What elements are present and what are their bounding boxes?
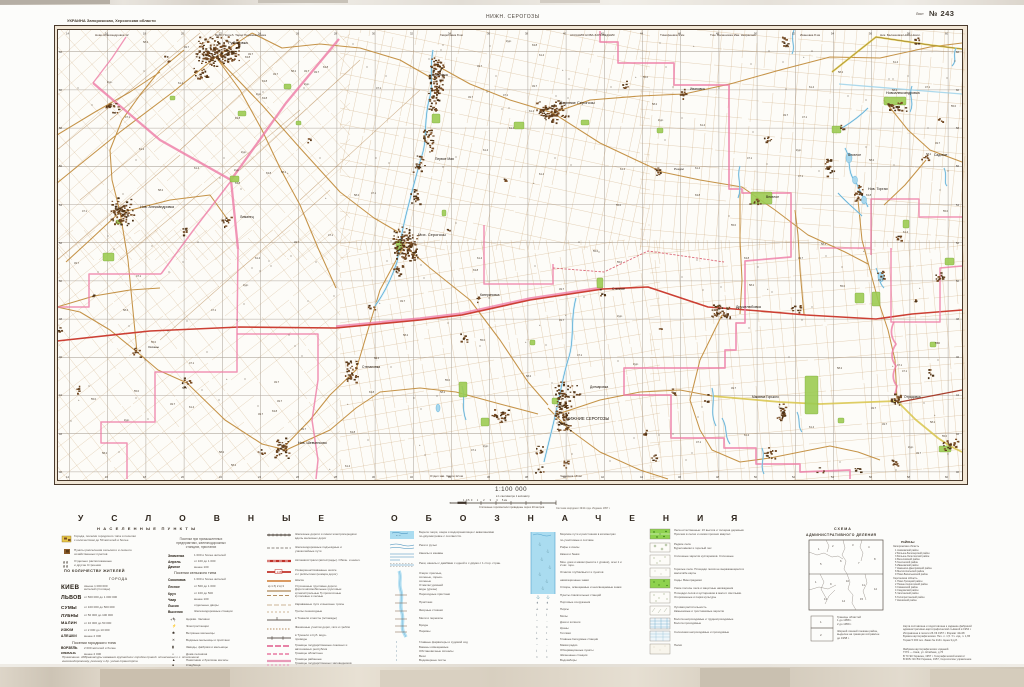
svg-text:58.2: 58.2 [930,420,936,424]
svg-text:58.2: 58.2 [403,333,409,337]
svg-text:Мих. Серогозы: Мих. Серогозы [418,232,446,237]
svg-text:61.4: 61.4 [178,81,184,85]
svg-text:Кург.: Кург. [256,92,262,96]
svg-text:55.0: 55.0 [943,209,949,213]
svg-text:⚓: ⚓ [546,595,550,599]
svg-text:Оксаны: Оксаны [148,345,160,349]
svg-text:55.0: 55.0 [643,75,649,79]
svg-text:47.1: 47.1 [189,361,195,365]
svg-text:49.7: 49.7 [184,45,190,49]
svg-text:61.4: 61.4 [744,433,750,437]
svg-text:61.4: 61.4 [809,85,815,89]
svg-text:Степное: Степное [612,287,625,291]
svg-text:⟟: ⟟ [396,649,397,653]
svg-text:Степановка: Степановка [362,365,380,369]
svg-text:63.8: 63.8 [266,171,272,175]
svg-text:55.0: 55.0 [942,434,948,438]
svg-text:49.7: 49.7 [400,299,406,303]
svg-text:⌐ ¬: ⌐ ¬ [396,533,401,537]
svg-text:63.8: 63.8 [744,256,750,260]
svg-text:··: ·· [546,619,548,623]
svg-text:Отдел зав. Чапли 12 км: Отдел зав. Чапли 12 км [430,474,463,478]
svg-text:Кург.: Кург. [241,150,247,154]
svg-text:д д: д д [63,564,68,568]
svg-text:49.7: 49.7 [878,278,884,282]
svg-text:2: 2 [820,633,822,637]
svg-text:61.4: 61.4 [695,166,701,170]
svg-text:49.7: 49.7 [783,113,789,117]
svg-text:63.8: 63.8 [262,96,268,100]
svg-text:61.4: 61.4 [477,256,483,260]
svg-text:61.4: 61.4 [194,166,200,170]
svg-text:49.7: 49.7 [477,64,483,68]
svg-text:47.1: 47.1 [925,85,931,89]
svg-text:1: 1 [820,620,822,624]
svg-text:↟: ↟ [536,601,539,605]
svg-text:Кург.: Кург. [397,252,403,256]
svg-text:61.4: 61.4 [374,356,380,360]
svg-text:61.4: 61.4 [539,172,545,176]
svg-text:63.8: 63.8 [245,55,251,59]
svg-text:⟟: ⟟ [396,645,397,649]
svg-text:49.7: 49.7 [258,412,264,416]
svg-text:49.7: 49.7 [468,95,474,99]
svg-text:47.1: 47.1 [696,440,702,444]
svg-text:61.4: 61.4 [700,123,706,127]
svg-text:55.0: 55.0 [616,203,622,207]
svg-text:НИЖНИЕ СЕРОГОЗЫ: НИЖНИЕ СЕРОГОЗЫ [566,416,609,421]
svg-text:Верхние Серогозы: Верхние Серогозы [560,100,595,105]
svg-text:14: 14 [842,599,846,603]
svg-text:63.8: 63.8 [323,65,329,69]
svg-text:⟟: ⟟ [546,631,547,635]
svg-text:63.8: 63.8 [473,268,479,272]
svg-text:Кург.: Кург. [243,283,249,287]
svg-text:49.7: 49.7 [74,261,80,265]
svg-text:49.7: 49.7 [871,406,877,410]
svg-text:Кург.: Кург. [658,118,664,122]
svg-text:Рубановка: Рубановка [228,40,249,45]
svg-text:11: 11 [862,583,865,587]
svg-text:55.0: 55.0 [951,104,957,108]
svg-text:148: 148 [277,570,282,574]
svg-text:Дружелюбовка: Дружелюбовка [736,305,761,309]
svg-text:58.2: 58.2 [526,374,532,378]
svg-text:Катериновка: Катериновка [480,293,500,297]
svg-text:⟟: ⟟ [396,640,397,644]
svg-text:49.7: 49.7 [532,84,538,88]
svg-text:··: ·· [536,643,538,647]
svg-text:63.8: 63.8 [350,430,356,434]
svg-text:61.4: 61.4 [903,230,909,234]
svg-text:Роздол: Роздол [674,167,684,171]
svg-text:49.7: 49.7 [170,402,176,406]
svg-text:Косаковка: Косаковка [432,73,448,77]
svg-text:12: 12 [874,587,878,591]
svg-text:15: 15 [860,597,864,601]
svg-text:55.0: 55.0 [445,378,451,382]
svg-text:63.8: 63.8 [532,43,538,47]
svg-text:⌇: ⌇ [536,613,538,617]
svg-text:Лиманец: Лиманец [240,215,254,219]
svg-text:61.4: 61.4 [809,425,815,429]
svg-text:49.7: 49.7 [304,69,310,73]
svg-text:47.1: 47.1 [125,115,131,119]
svg-text:⚓: ⚓ [536,595,540,599]
svg-text:55.0: 55.0 [840,284,846,288]
svg-text:Кург.: Кург. [908,445,914,449]
svg-text:58.2: 58.2 [926,152,932,156]
svg-text:63.8: 63.8 [272,409,278,413]
svg-text:47.1: 47.1 [371,191,377,195]
svg-text:Первое Мая: Первое Мая [435,157,454,161]
svg-text:49.7: 49.7 [935,141,941,145]
svg-text:47.1: 47.1 [136,274,142,278]
svg-text:13: 13 [824,597,828,601]
svg-text:Нов. Торгаи: Нов. Торгаи [868,187,888,191]
svg-text:47.1: 47.1 [328,233,334,237]
svg-text:61.4: 61.4 [189,405,195,409]
svg-text:Кург.: Кург. [107,80,113,84]
svg-text:58.2: 58.2 [838,70,844,74]
svg-text:Нов. Шевченково: Нов. Шевченково [298,441,327,445]
svg-text:58.2: 58.2 [182,386,188,390]
svg-text:⚓: ⚓ [546,549,550,553]
svg-text:)(: )( [276,616,278,620]
svg-text:61.4: 61.4 [893,60,899,64]
svg-text:47.1: 47.1 [503,93,509,97]
svg-text:··: ·· [536,619,538,623]
svg-text:49.7: 49.7 [731,386,737,390]
svg-text:49.7: 49.7 [559,287,565,291]
svg-text:58.2: 58.2 [281,170,287,174]
svg-text:49.7: 49.7 [916,451,922,455]
svg-text:61.4: 61.4 [255,256,261,260]
svg-text:↟: ↟ [546,601,549,605]
svg-text:⟂: ⟂ [536,607,539,611]
svg-text:61.4: 61.4 [509,126,515,130]
svg-text:63.8: 63.8 [235,181,241,185]
svg-text:58.2: 58.2 [143,40,149,44]
svg-text:47.1: 47.1 [798,174,804,178]
svg-text:Ивановка: Ивановка [690,87,705,91]
svg-text:Кург.: Кург. [506,39,512,43]
svg-text:Отрадовка: Отрадовка [904,395,921,399]
svg-text:55.0: 55.0 [480,338,486,342]
svg-text:58.2: 58.2 [219,450,225,454]
svg-text:≈: ≈ [536,625,538,629]
svg-text:58.2: 58.2 [291,69,297,73]
svg-text:49.7: 49.7 [294,240,300,244]
svg-text:⚓: ⚓ [538,542,542,546]
svg-text:⟟: ⟟ [536,631,538,635]
svg-text:63.8: 63.8 [866,193,872,197]
svg-text:61.4: 61.4 [620,167,626,171]
svg-text:Ивановка 8 км: Ивановка 8 км [800,33,820,37]
svg-text:Гавриловка 8 км: Гавриловка 8 км [440,33,463,37]
svg-text:⚓: ⚓ [545,579,549,583]
svg-text:Садовое: Садовое [934,153,948,157]
svg-text:55.0: 55.0 [151,340,157,344]
svg-text:63.8: 63.8 [369,390,375,394]
svg-text:+: + [536,637,538,641]
svg-text:49.7: 49.7 [314,70,320,74]
svg-text:58.2: 58.2 [821,242,827,246]
svg-text:⟟: ⟟ [396,654,397,658]
svg-text:а) 1 б) 2 в) 3: а) 1 б) 2 в) 3 [268,584,284,588]
svg-text:Кург.: Кург. [796,148,802,152]
svg-text:58.2: 58.2 [102,451,108,455]
svg-text:Веселое: Веселое [848,153,861,157]
svg-text:63.8: 63.8 [235,116,241,120]
svg-text:⌇: ⌇ [546,613,547,617]
svg-text:55.0: 55.0 [91,397,97,401]
svg-text:47.1: 47.1 [471,448,477,452]
svg-text:··: ·· [546,643,548,647]
svg-text:55.0: 55.0 [593,249,599,253]
svg-text:Нов. Александровка: Нов. Александровка [140,205,174,209]
svg-text:61.4: 61.4 [345,464,351,468]
svg-text:Кург.: Кург. [124,418,130,422]
svg-text:Ново-Александровка 12: Ново-Александровка 12 [95,33,129,37]
svg-text:47.1: 47.1 [376,86,382,90]
svg-text:≈: ≈ [546,625,548,629]
svg-text:47.1: 47.1 [82,209,88,213]
svg-text:55.0: 55.0 [617,260,623,264]
svg-text:⌇: ⌇ [536,649,538,653]
svg-text:47.1: 47.1 [211,308,217,312]
svg-text:58.2: 58.2 [440,390,446,394]
svg-text:49.7: 49.7 [559,318,565,322]
svg-text:Ник. Балашовка Ново-Никол.: Ник. Балашовка Ново-Никол. [880,33,921,37]
svg-text:47.1: 47.1 [747,156,753,160]
svg-text:47.1: 47.1 [577,353,583,357]
svg-text:58.2: 58.2 [892,88,898,92]
svg-text:49.7: 49.7 [301,427,307,431]
svg-text:58.2: 58.2 [354,193,360,197]
svg-text:⚓: ⚓ [540,557,544,561]
svg-text:АСКАНИЯ НОВА ЗАПОВЕДНИК: АСКАНИЯ НОВА ЗАПОВЕДНИК [570,33,615,37]
svg-text:Максима Горького: Максима Горького [752,395,779,399]
svg-text:10: 10 [846,579,850,583]
svg-text:58.2: 58.2 [652,102,658,106]
svg-text:+: + [546,637,548,641]
svg-text:Кург.: Кург. [633,362,639,366]
svg-text:⟂: ⟂ [546,607,548,611]
svg-text:⟟: ⟟ [396,658,397,662]
svg-text:61.4: 61.4 [529,109,535,113]
svg-text:63.8: 63.8 [695,193,701,197]
svg-text:58.2: 58.2 [231,463,237,467]
svg-text:47.1: 47.1 [897,363,903,367]
svg-text:47.1: 47.1 [802,115,808,119]
svg-text:58.2: 58.2 [158,188,164,192]
svg-text:58.2: 58.2 [749,283,755,287]
svg-text:⌇: ⌇ [546,649,547,653]
svg-text:58.2: 58.2 [869,158,875,162]
svg-text:49.7: 49.7 [882,422,888,426]
svg-text:58.2: 58.2 [837,366,843,370]
svg-text:61.4: 61.4 [539,53,545,57]
svg-text:49.7: 49.7 [277,399,283,403]
svg-text:55.0: 55.0 [134,389,140,393]
svg-text:⚓: ⚓ [541,586,545,590]
svg-text:Догмаровка: Догмаровка [590,385,608,389]
svg-text:Кург.: Кург. [483,444,489,448]
svg-text:49.7: 49.7 [798,256,804,260]
svg-text:⚓: ⚓ [538,572,542,576]
svg-text:≈: ≈ [546,655,548,659]
svg-text:Веселое: Веселое [766,195,779,199]
svg-text:≈: ≈ [536,655,538,659]
svg-text:61.4: 61.4 [483,148,489,152]
svg-text:61.4: 61.4 [139,147,145,151]
svg-text:55.0: 55.0 [731,223,737,227]
svg-text:63.8: 63.8 [262,79,268,83]
svg-text:58.2: 58.2 [123,308,129,312]
svg-text:Кург.: Кург. [304,82,310,86]
svg-text:49.7: 49.7 [274,380,280,384]
svg-text:⚓: ⚓ [548,565,552,569]
svg-text:Кург.: Кург. [617,314,623,318]
svg-text:47.1: 47.1 [902,369,908,373]
svg-text:Кург.: Кург. [234,168,240,172]
svg-text:49.7: 49.7 [273,72,279,76]
svg-text:55.0: 55.0 [935,341,941,345]
